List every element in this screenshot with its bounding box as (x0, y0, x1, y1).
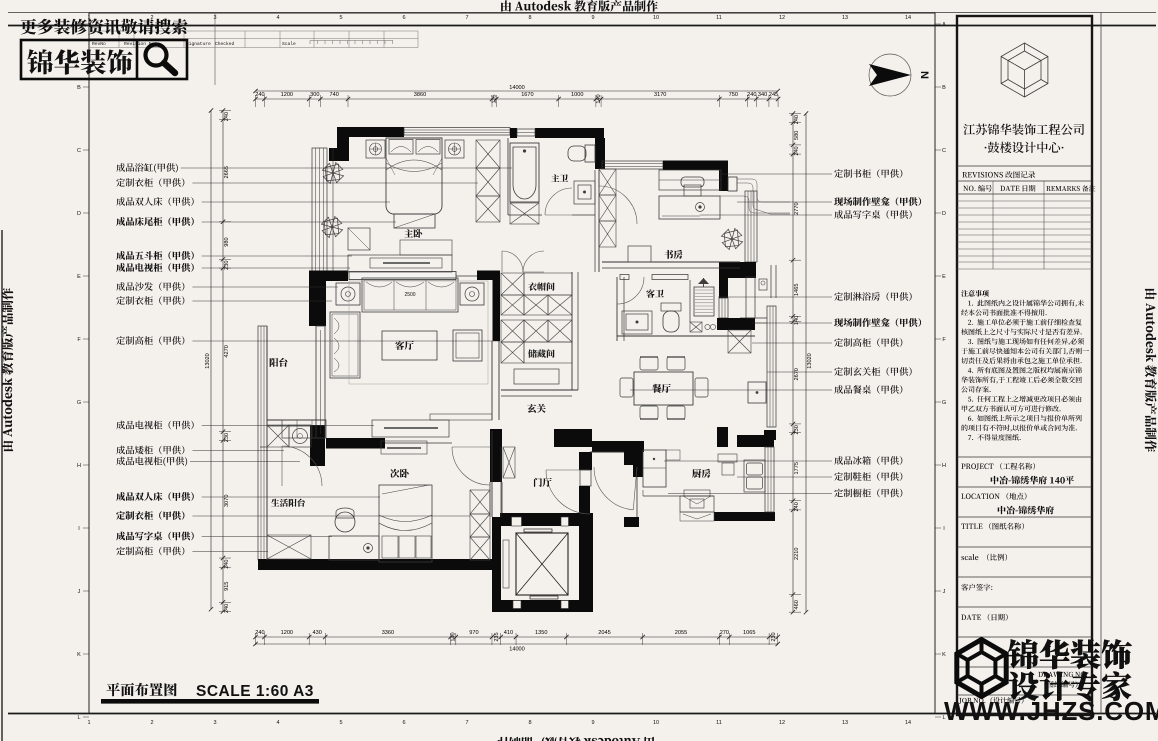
svg-text:460: 460 (794, 600, 800, 609)
svg-text:6: 6 (402, 720, 405, 726)
svg-text:12: 12 (779, 15, 785, 21)
svg-text:13020: 13020 (205, 353, 211, 369)
svg-text:4270: 4270 (224, 345, 230, 357)
svg-text:410: 410 (504, 630, 513, 636)
svg-text:14: 14 (905, 720, 911, 726)
svg-text:740: 740 (330, 92, 339, 98)
svg-text:11: 11 (716, 720, 722, 726)
svg-text:1775: 1775 (794, 462, 800, 474)
svg-text:8: 8 (528, 15, 531, 21)
svg-text:9: 9 (591, 15, 594, 21)
svg-text:245: 245 (769, 92, 778, 98)
svg-text:230: 230 (224, 261, 230, 270)
svg-text:3070: 3070 (224, 495, 230, 507)
svg-text:D: D (942, 211, 946, 217)
svg-text:H: H (77, 463, 81, 469)
svg-text:1065: 1065 (743, 630, 755, 636)
svg-text:14: 14 (905, 15, 911, 21)
svg-text:10: 10 (653, 720, 659, 726)
svg-text:E: E (942, 274, 946, 280)
svg-text:13020: 13020 (807, 353, 813, 369)
svg-text:8: 8 (528, 720, 531, 726)
svg-text:4: 4 (276, 15, 279, 21)
svg-text:C: C (942, 148, 946, 154)
svg-text:3: 3 (213, 720, 216, 726)
svg-text:B: B (942, 85, 946, 91)
svg-text:2670: 2670 (794, 368, 800, 380)
svg-text:L: L (77, 715, 80, 721)
svg-text:9: 9 (591, 720, 594, 726)
svg-text:13: 13 (842, 15, 848, 21)
svg-text:5: 5 (339, 15, 342, 21)
svg-text:Checked: Checked (215, 41, 235, 47)
svg-text:2045: 2045 (598, 630, 610, 636)
svg-text:E: E (77, 274, 81, 280)
svg-text:7: 7 (465, 720, 468, 726)
svg-text:D: D (77, 211, 81, 217)
svg-text:4: 4 (276, 720, 279, 726)
svg-text:1200: 1200 (281, 630, 293, 636)
svg-text:3360: 3360 (382, 630, 394, 636)
svg-text:2055: 2055 (675, 630, 687, 636)
svg-text:140: 140 (794, 316, 800, 325)
svg-text:14000: 14000 (509, 85, 525, 91)
svg-text:430: 430 (313, 630, 322, 636)
svg-text:750: 750 (729, 92, 738, 98)
svg-text:2770: 2770 (794, 202, 800, 214)
svg-text:6: 6 (402, 15, 405, 21)
svg-text:B: B (77, 85, 81, 91)
svg-text:5: 5 (339, 720, 342, 726)
svg-text:K: K (77, 652, 81, 658)
svg-text:340: 340 (758, 92, 767, 98)
svg-text:970: 970 (469, 630, 478, 636)
svg-text:1000: 1000 (571, 92, 583, 98)
svg-text:2: 2 (150, 720, 153, 726)
svg-text:230: 230 (771, 632, 777, 641)
svg-text:240: 240 (255, 630, 264, 636)
svg-text:C: C (77, 148, 81, 154)
svg-text:N: N (918, 71, 930, 79)
svg-text:915: 915 (224, 582, 230, 591)
svg-text:7: 7 (465, 15, 468, 21)
svg-text:10: 10 (653, 15, 659, 21)
svg-text:WWW.JHZS.COM: WWW.JHZS.COM (944, 696, 1158, 726)
svg-text:2500: 2500 (404, 292, 415, 298)
svg-text:SCALE 1:60 A3: SCALE 1:60 A3 (196, 683, 314, 700)
svg-text:1350: 1350 (535, 630, 547, 636)
svg-text:14000: 14000 (509, 647, 525, 653)
svg-text:3170: 3170 (654, 92, 666, 98)
svg-text:230: 230 (794, 425, 800, 434)
svg-text:2210: 2210 (794, 547, 800, 559)
svg-text:RevNo: RevNo (92, 41, 106, 47)
svg-text:G: G (942, 400, 946, 406)
svg-text:13: 13 (842, 720, 848, 726)
svg-text:Signature: Signature (186, 41, 211, 47)
svg-text:H: H (942, 463, 946, 469)
svg-text:235: 235 (494, 632, 500, 641)
svg-text:12: 12 (779, 720, 785, 726)
svg-text:240: 240 (255, 92, 264, 98)
svg-text:1200: 1200 (281, 92, 293, 98)
svg-text:980: 980 (224, 237, 230, 246)
svg-text:Scale: Scale (282, 41, 296, 47)
svg-text:1: 1 (87, 720, 90, 726)
svg-text:230: 230 (224, 433, 230, 442)
svg-text:1465: 1465 (794, 284, 800, 296)
svg-text:J: J (78, 589, 81, 595)
svg-text:240: 240 (747, 92, 756, 98)
svg-text:3860: 3860 (414, 92, 426, 98)
svg-text:J: J (943, 589, 946, 595)
svg-text:580: 580 (794, 131, 800, 140)
svg-text:11: 11 (716, 15, 722, 21)
svg-text:G: G (77, 400, 81, 406)
svg-text:1670: 1670 (521, 92, 533, 98)
svg-text:K: K (942, 652, 946, 658)
